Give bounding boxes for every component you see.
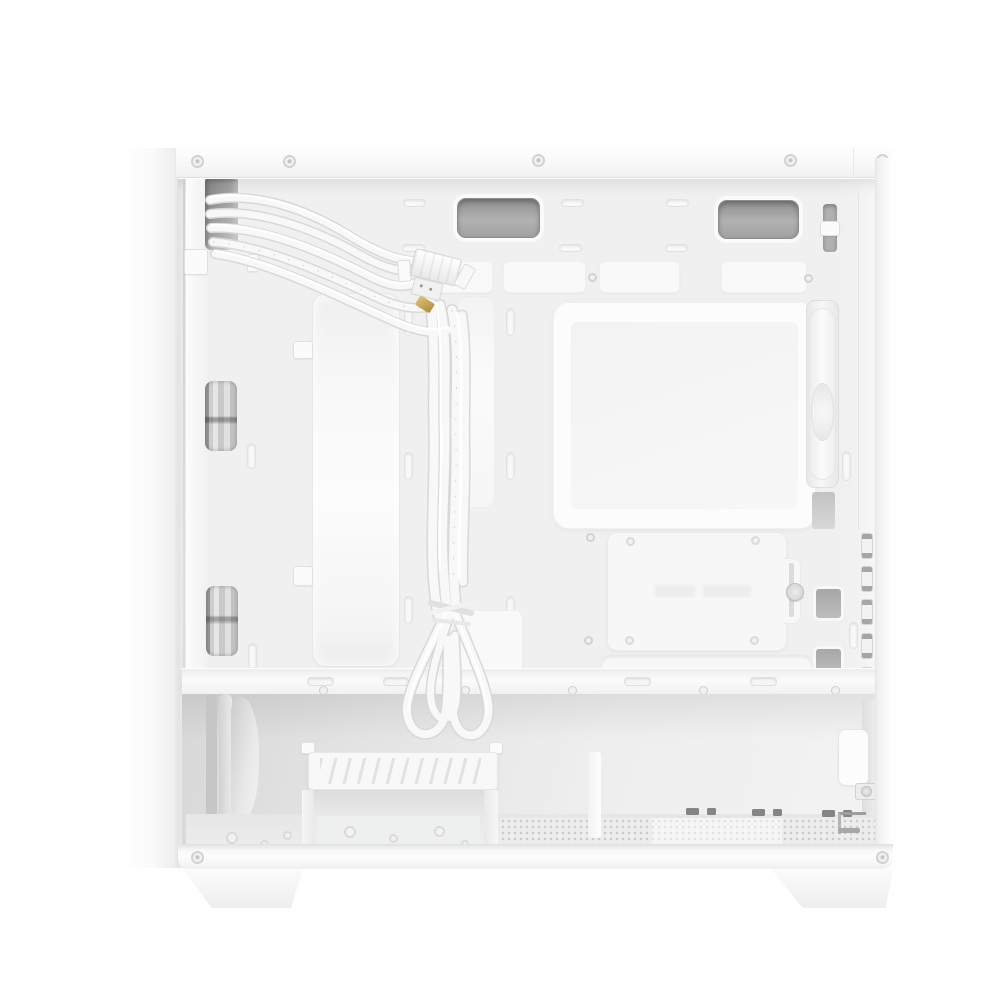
ssd-hole-4 (750, 636, 759, 645)
bottom-rivet-right (876, 851, 889, 864)
fan-rail-strip (457, 296, 495, 508)
front-edge-tab-upper (184, 249, 208, 275)
divider-slot-3 (624, 677, 651, 686)
standoff-mid-3 (584, 636, 593, 645)
case-foot-left (183, 869, 303, 908)
fan-window-top (205, 381, 237, 451)
psu-rail-dash-3 (752, 809, 765, 816)
psu-rail-dash-5 (822, 810, 835, 817)
tray-slot-rear-2 (849, 622, 858, 649)
floor-hole-1 (226, 832, 238, 844)
tray-slot-b1 (404, 452, 413, 480)
mount-pad-4 (721, 261, 807, 293)
expansion-latch-2 (861, 566, 873, 592)
bottom-rivet-left (191, 851, 204, 864)
expansion-latch-4 (861, 633, 873, 659)
rear-fan-lower-bracket (812, 492, 835, 529)
standoff-top-2 (804, 274, 813, 283)
psu-mount-bracket (838, 729, 869, 786)
psu-thumbscrew-head (861, 786, 872, 797)
cable-cutout (205, 179, 238, 250)
mount-pad-2 (503, 261, 586, 293)
top-rail-notch (853, 148, 854, 176)
drive-cage-shelf-vents (320, 758, 486, 784)
rear-seam (858, 192, 859, 530)
front-column-slot-2 (248, 643, 257, 669)
cage-hole-3 (434, 826, 445, 837)
divider-slot-1 (307, 677, 334, 686)
ssd-thumbscrew (786, 583, 804, 601)
tray-slot-a2 (506, 308, 515, 336)
bottom-rail (178, 844, 893, 869)
top-rivet-3 (532, 154, 545, 167)
case-foot-right (771, 869, 893, 908)
top-rivet-2 (283, 155, 296, 168)
ssd-hole-1 (626, 537, 635, 546)
mount-pad-3 (599, 261, 680, 293)
rear-tie-clip (820, 221, 840, 236)
cage-hole-1 (344, 826, 356, 838)
top-slot-6 (665, 244, 688, 252)
fan-window-bottom (206, 586, 238, 656)
ssd-hole-3 (625, 636, 634, 645)
drive-cage-wall-right (484, 790, 498, 852)
psu-rail-dash-4 (773, 809, 782, 816)
cage-hole-2 (389, 834, 398, 843)
ssd-embossed-mark (703, 585, 751, 597)
psu-rail-dash-2 (707, 808, 716, 815)
cable-grommet-left (457, 198, 540, 238)
standoff-mid-2 (586, 533, 595, 542)
rear-grommet-square-1 (816, 589, 841, 618)
cable-grommet-right (718, 200, 799, 239)
top-rail (176, 145, 892, 178)
psu-rail-dash-1 (686, 808, 699, 815)
divider-slot-4 (750, 677, 777, 686)
ssd-hole-2 (751, 536, 760, 545)
divider-slot-2 (383, 677, 409, 686)
product-photo-canvas (0, 0, 1000, 1000)
ssd-embossed-mark (655, 585, 695, 597)
top-rivet-4 (784, 154, 797, 167)
floor-hole-3 (283, 831, 292, 840)
front-panel (120, 148, 178, 868)
top-slot-3 (666, 199, 689, 207)
psu-support-rail (588, 752, 601, 838)
tray-slot-c1 (404, 596, 413, 624)
radiator-bracket (312, 293, 400, 667)
front-clip-small (247, 254, 259, 272)
standoff-top-1 (588, 273, 597, 282)
tray-slot-rear-1 (842, 451, 851, 481)
ssd-bracket (607, 532, 787, 651)
bracket-clip-upper (293, 341, 313, 359)
tray-slot-b2 (506, 452, 515, 480)
shroud-front-bracket (455, 610, 523, 677)
bracket-clip-lower (293, 566, 313, 586)
rear-fan-hub (811, 383, 834, 441)
floor-corner-bar (838, 828, 860, 833)
expansion-latch-1 (861, 533, 873, 559)
expansion-latch-3 (861, 599, 873, 625)
top-rivet-1 (191, 155, 204, 168)
front-fans-stack (206, 694, 217, 822)
top-slot-2 (561, 199, 584, 207)
standoff-mid-1 (458, 528, 467, 537)
drive-cage-wall-left (302, 790, 314, 852)
tray-window-inner (571, 322, 798, 509)
front-column-slot-1 (247, 443, 256, 469)
rear-panel (875, 158, 893, 868)
top-slot-5 (559, 244, 582, 252)
top-slot-1 (403, 199, 426, 207)
